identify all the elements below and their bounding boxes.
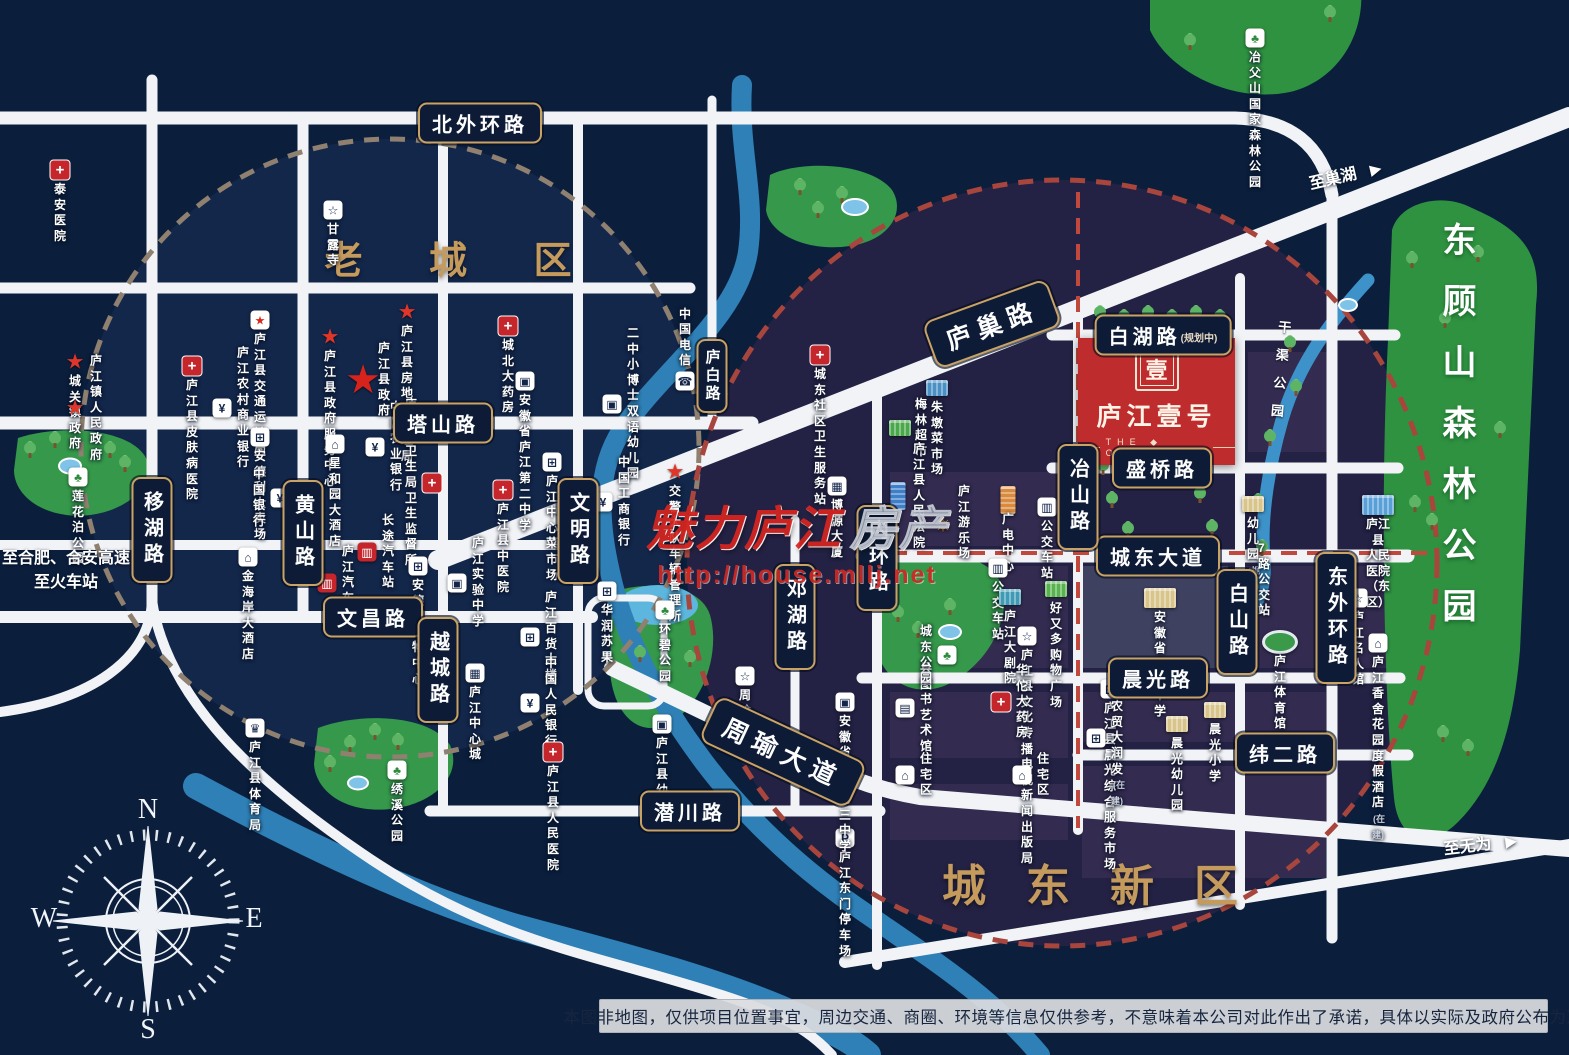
poi-label: 庐江 中心城 [469,685,481,763]
poi-label: 庐江县政府 [378,341,390,419]
road-badge-shengqiao: 盛桥路 [1112,448,1212,489]
tree-icon [794,179,806,195]
poi-label: 公交车站 [1041,519,1053,581]
poi-label-text: 环碧公园 [659,622,671,683]
hospital-cross-icon: + [810,345,831,366]
poi-label-text: 庐江中心 菜市场 [546,474,558,582]
gov-star-icon: ★ [66,396,85,421]
hotel-icon: ⌂ [239,548,258,567]
tree-icon [1324,6,1336,22]
tree-icon [49,432,61,448]
poi-label-text: 庐江县体育局 [249,740,261,832]
poi-label-text: 庐江东门停车场 [839,850,851,958]
poi-label: 冶父山国家森林公园 [1249,50,1261,190]
watermark-suffix: 房产 [850,502,948,555]
poi-note: (在建) [1372,814,1385,840]
poi-label: 晨光小学 [1209,722,1221,784]
road-badge-tashan: 塔山路 [393,403,493,444]
poi-label: 庐江大剧院 [1004,609,1016,687]
bus-icon: ▥ [1038,498,1057,517]
home-icon: ⌂ [896,766,915,785]
poi-label: 城东社区 卫生服务站 [814,367,826,507]
poi-label: 金海岸大酒店 [242,569,254,663]
road-badge-text: 庐白路 [704,349,721,403]
poi-label: 华润苏果 [601,603,613,665]
bus-icon: ▥ [358,543,377,562]
gov-star-icon: ★ [345,357,381,403]
poi-label: 庐江县中医院 [497,502,509,596]
bank-icon: ¥ [213,399,232,418]
compass-south: S [140,1014,156,1046]
pond-icon [347,776,369,791]
poi-label: 中国银行 [253,467,265,529]
poi-label-text: 庐江大剧院 [1004,609,1016,685]
poi-label-text: 金海岸大酒店 [242,569,254,661]
park-icon: ♣ [656,601,675,620]
poi-label-text: 中国人民 银行 [545,656,557,748]
tree-icon [1437,726,1449,742]
road-badge-baishan: 白山路 [1217,569,1258,675]
tree-icon [119,456,131,472]
poi-label-text: 庐江县中医院 [497,502,509,594]
road-badge-text: 潜川路 [654,803,726,825]
district-old-town: 老 城 区 [324,230,599,285]
road-badge-text: 白湖路 [1109,327,1181,349]
poi-label: 泰安医院 [54,182,66,244]
poi-label-text: 华润苏果 [601,603,613,664]
building-icon [1166,716,1188,732]
poi-label-text: 星和园大酒店 [329,456,341,548]
poi-label-text: 庐江县政府 [378,341,390,417]
mall-icon: ⊞ [1087,729,1106,748]
poi-label-text: 庐江游乐场 [958,484,970,560]
hospital-cross-icon: + [422,473,443,494]
building-icon [1144,588,1176,608]
hospital-cross-icon: + [50,160,71,181]
road-badge-text: 白山路 [1226,583,1248,661]
mall-icon: ▦ [466,664,485,683]
poi-label: 庐江实验中学 [472,536,484,630]
poi-label: 7路公交站 [1258,541,1270,619]
poi-label: 庐江香舍花园 度假酒店(在建) [1371,655,1385,842]
tree-icon [1462,740,1474,756]
road-badge-chengdong-avenue: 城东大道 [1096,536,1220,577]
poi-label-text: 庐江县 人民医院 [547,764,559,872]
road-badge-weier: 纬二路 [1235,733,1335,774]
park-icon: ♣ [1246,29,1265,48]
mall-icon: ⊞ [409,557,428,576]
telecom-icon: ☎ [676,372,695,391]
school-icon: ▣ [516,372,535,391]
tree-icon [24,442,36,458]
tree-icon [1290,380,1302,396]
poi-label-text: 中国银行 [253,467,265,528]
tree-icon [1264,430,1276,446]
hotel-icon: ⌂ [1369,634,1388,653]
poi-label-text: 安徽省 庐江第二中学 [519,393,531,532]
school-icon: ▣ [603,395,622,414]
hospital-cross-icon: + [543,742,564,763]
tree-icon [1184,34,1196,50]
road-badge-yuecheng: 越城路 [418,617,459,723]
road-badge-text: 冶山路 [1067,458,1089,536]
poi-label: 绣溪公园 [391,782,403,844]
road-badge-dongwaihuan: 东外环路 [1316,552,1357,684]
direction-text: 至合肥、合安高速 至火车站 [2,550,130,591]
hospital-cross-icon: + [991,692,1012,713]
poi-label: 住宅区 [1037,752,1049,799]
poi-label-text: 晨光幼儿园 [1171,736,1183,812]
road-badge-text: 纬二路 [1249,745,1321,767]
poi-label-text: 庐江县 人民医院（东区） [1366,517,1390,609]
poi-label: 城东公园 [920,624,932,686]
poi-note: (在建) [1111,780,1125,806]
school-icon: ▣ [448,574,467,593]
poi-label-text: 长途汽车站 [382,513,394,589]
market-icon: ⊞ [598,582,617,601]
direction-arrow-icon: ▶ [1504,833,1518,851]
road-badge-text: 东外环路 [1325,566,1347,670]
road-badge-text: 塔山路 [407,415,479,437]
poi-label: 安徽省 庐江第二中学 [519,393,531,533]
tree-icon [684,651,696,667]
road-badge-wenchang: 文昌路 [323,597,423,638]
road-badge-text: 文昌路 [337,609,409,631]
poi-label: 长途汽车站 [382,513,394,591]
road-badge-yeshan: 冶山路 [1058,444,1099,550]
road-badge-huangshan: 黄山路 [283,480,324,586]
road-badge-baihu: 白湖路(规划中) [1095,315,1232,356]
poi-label-text: 绣溪公园 [391,782,403,843]
poi-label: 庐江县 人民医院 [547,764,559,873]
tree-icon [1194,487,1206,503]
gov-star-icon: ★ [321,325,340,350]
poi-label-text: 住宅区 [1037,752,1049,797]
building-icon [889,420,911,436]
poi-label-text: 城东社区 卫生服务站 [814,367,826,506]
poi-label-text: 朱墩菜市场 [931,400,943,476]
poi-label: 朱墩菜市场 [931,400,943,478]
temple-icon: ☆ [1018,627,1037,646]
project-name: 庐江壹号 [1096,397,1216,433]
building-icon [1045,581,1067,597]
gov-star-icon: ★ [666,460,685,485]
tree-icon [344,736,356,752]
watermark-url: http://house.mllj.net [646,561,948,590]
poi-label: 环碧公园 [659,622,671,684]
road-badge-text: 城东大道 [1110,548,1206,570]
compass-north: N [138,794,158,826]
building-icon [1204,702,1226,718]
poi-label-text: 冶父山国家森林公园 [1249,50,1261,189]
project-card[interactable]: 壹 庐江壹号 THE ◆ ONE [1078,338,1235,465]
donggushan-forest-park-label: 东顾山森林公园 [1432,222,1481,649]
bus-icon: ▥ [989,559,1008,578]
tree-icon [104,442,116,458]
road-badge-text: 越城路 [427,631,449,709]
poi-label-text: 甘露寺 [327,222,339,267]
poi-label-text: 住宅区 [920,752,932,797]
poi-label-text: 庐江 中心城 [469,685,481,761]
poi-label: 庐江中心 菜市场 [546,474,558,583]
temple-icon: ☆ [324,201,343,220]
road-badge-text: 盛桥路 [1126,460,1198,482]
road-badge-lubai: 庐白路 [697,339,728,413]
mall-icon: ⊞ [521,628,540,647]
poi-label: 甘露寺 [327,222,339,269]
building-icon [999,589,1021,605]
road-badge-text: 移湖路 [141,491,163,569]
park-icon: ♣ [69,468,88,487]
poi-label-text: 城北大药房 [502,338,514,414]
hospital-cross-icon: + [182,356,203,377]
road-badge-wenming: 文明路 [558,478,599,584]
tree-icon [1106,492,1118,508]
road-badge-text: 文明路 [567,492,589,570]
road-badge-text: 黄山路 [292,494,314,572]
tree-icon [634,646,646,662]
road-badge-text: 北外环路 [432,115,528,137]
compass-east: E [245,903,262,935]
road-badge-beiwaihuan: 北外环路 [418,103,542,144]
poi-label-text: 泰安医院 [54,182,66,243]
road-badge-qianchuan: 潜川路 [640,791,740,832]
tree-icon [1494,422,1506,438]
poi-label: 中国工商 银行 [618,455,630,549]
poi-label: 庐江东门停车场 [839,850,851,959]
poi-label-text: 庐江县皮肤病医院 [186,378,198,501]
poi-label: 庐江县 人民医院（东区） [1366,517,1390,611]
poi-label: 星和园大酒店 [329,456,341,550]
poi-label: 城北大药房 [502,338,514,416]
hotel-icon: ⌂ [326,435,345,454]
tree-icon [392,734,404,750]
poi-label-text: 晨光小学 [1209,722,1221,783]
mall-icon: ⊞ [251,428,270,447]
poi-label-text: 城东公园 [920,624,932,685]
road-badge-note: (规划中) [1181,334,1218,345]
poi-label-text: 中国电信 [679,307,691,368]
park-icon: ♣ [938,646,957,665]
poi-label-text: 公交车站 [1041,519,1053,580]
tree-icon [812,202,824,218]
pond-icon [1338,298,1358,312]
compass-west: W [31,903,57,935]
bank-icon: ¥ [521,694,540,713]
school-icon: ▣ [653,715,672,734]
road-badge-yihu: 移湖路 [132,477,173,583]
tree-icon [944,599,956,615]
poi-label: 华佗大药房 [1016,663,1028,741]
road-badge-chenguang: 晨光路 [1108,658,1208,699]
temple-icon: ☆ [736,667,755,686]
poi-label: 庐江农村商业银行 [237,346,249,471]
hospital-cross-icon: + [498,316,519,337]
poi-label-text: 好又多 购物广场 [1050,601,1062,709]
poi-label-text: 华佗大药房 [1016,663,1028,739]
gov-star-icon: ★ [66,350,85,375]
poi-label-text: 庐江实验中学 [472,536,484,628]
tree-icon [1206,520,1218,536]
poi-label: 好又多 购物广场 [1050,601,1062,710]
sports-icon: ♛ [246,719,265,738]
road-badge-text: 晨光路 [1122,670,1194,692]
tree-icon [1406,252,1418,268]
poi-label: 庐江县体育局 [249,740,261,834]
tree-icon [369,724,381,740]
poi-label: 庐江镇人民政府 [90,353,102,462]
school-icon: ▣ [836,693,855,712]
compass-rose [53,826,243,1016]
site-watermark: 魅力庐江房产 http://house.mllj.net [646,490,948,590]
location-map: 壹 庐江壹号 THE ◆ ONE 老 城 区 城东新区 东顾山森林公园 干渠公园… [0,0,1569,1055]
hospital-cross-icon: + [493,480,514,501]
disclaimer-text: 本图非地图，仅供项目位置事宜，周边交通、商圈、环境等信息仅供参考，不意味着本公司… [564,1004,1569,1028]
poi-label: 庐江体育馆 [1274,654,1286,732]
pond-icon [841,198,869,216]
gov-star-icon: ★ [398,300,417,325]
poi-label: 庐江游乐场 [958,484,970,562]
poi-label: 庐江县皮肤病医院 [186,378,198,503]
market-icon: ⊞ [543,453,562,472]
poi-label: 晨光幼儿园 [1171,736,1183,814]
home-icon: ⌂ [1013,766,1032,785]
pond-icon [938,624,962,640]
building-icon [926,380,948,396]
poi-label-text: 庐江香舍花园 度假酒店 [1372,655,1384,809]
building-icon [1242,496,1264,512]
poi-label-text: 7路公交站 [1258,541,1270,617]
park-icon: ♣ [388,761,407,780]
poi-label-text: 中国工商 银行 [618,455,630,547]
building-icon [1001,486,1016,514]
bank-icon: ¥ [366,438,385,457]
tree-icon [324,756,336,772]
poi-label-text: 庐江体育馆 [1274,654,1286,730]
poi-label-text: 庐江农村商业银行 [237,346,249,469]
poi-label: 中国人民 银行 [545,656,557,750]
book-icon: ▤ [896,699,915,718]
gov-star-icon: ★ [251,311,270,330]
poi-label-text: 庐江镇人民政府 [90,353,102,461]
watermark-brand: 魅力庐江 [646,502,842,555]
tree-icon [1409,496,1421,512]
disclaimer-bar: 本图非地图，仅供项目位置事宜，周边交通、商圈、环境等信息仅供参考，不意味着本公司… [599,999,1548,1033]
poi-label: 住宅区 [920,752,932,799]
poi-label: 中国电信 [679,307,691,369]
direction-label-2: 至合肥、合安高速 至火车站 [2,544,130,592]
building-icon [1362,495,1394,515]
stadium-icon [1262,630,1298,654]
